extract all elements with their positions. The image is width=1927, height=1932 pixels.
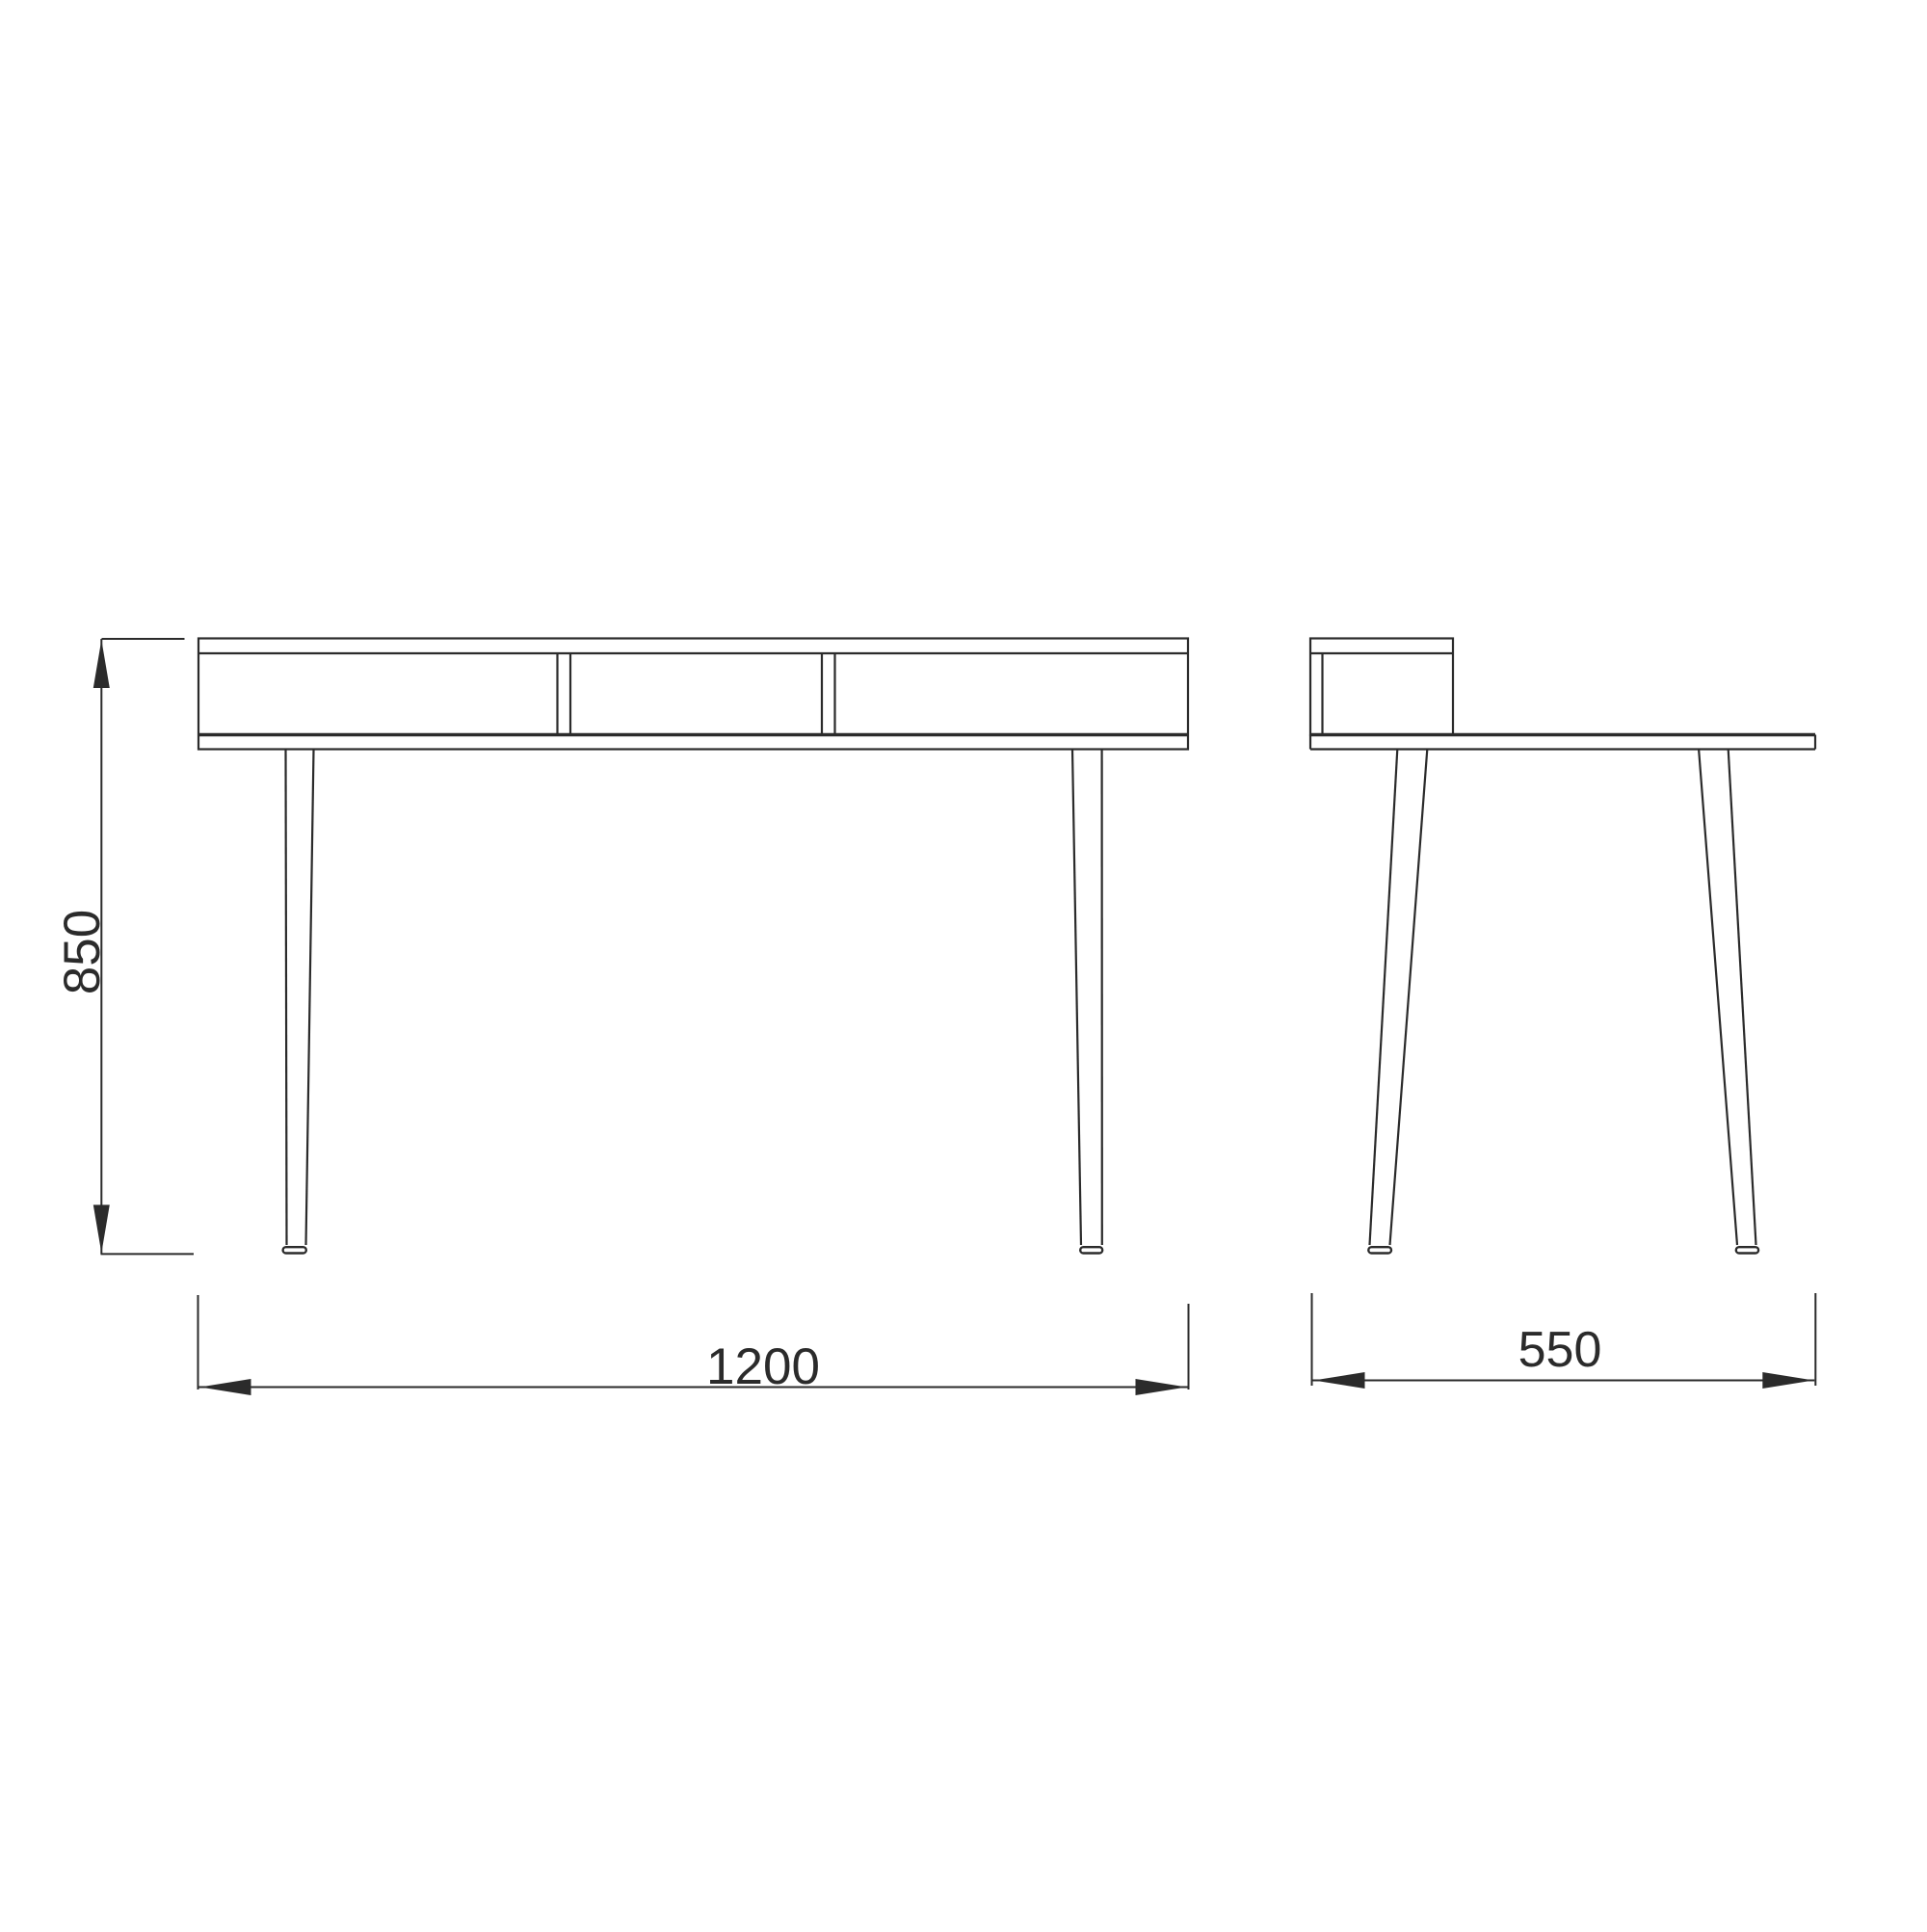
svg-text:1200: 1200 [706, 1338, 820, 1395]
svg-text:550: 550 [1518, 1322, 1602, 1378]
svg-text:850: 850 [54, 910, 111, 994]
